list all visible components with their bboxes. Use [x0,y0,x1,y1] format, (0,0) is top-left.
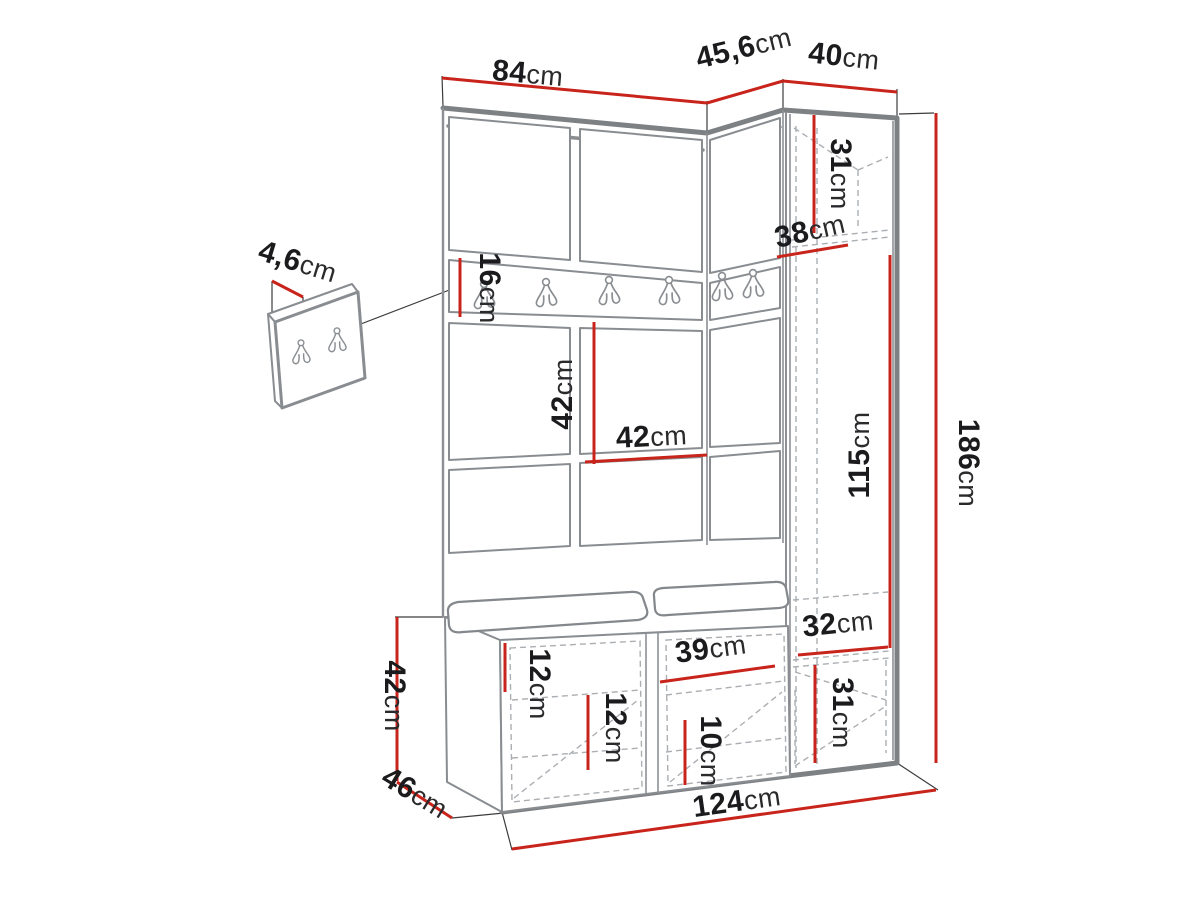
furniture-dimension-diagram: 84cm 45,6cm 40cm 31cm 38cm 186cm 115cm 1… [0,0,1200,899]
dim-line-40 [783,81,897,92]
dim-label-42-bench: 42cm [378,660,411,731]
dim-line-84 [442,78,707,103]
dim-label-42-horizontal: 42cm [615,418,688,455]
dim-label-40: 40cm [807,36,881,76]
dim-label-45-6: 45,6cm [692,20,794,76]
dim-line-4-6 [272,281,303,297]
dim-label-42-vertical: 42cm [546,358,579,429]
dim-label-10: 10cm [694,715,727,786]
bench-cushion-right [654,582,788,616]
dim-label-46: 46cm [376,760,454,825]
dim-label-31-bottom: 31cm [826,677,859,748]
dim-label-4-6: 4,6cm [255,234,341,289]
bench-cushion-left [448,592,647,632]
dim-label-12-a: 12cm [523,648,556,719]
dim-label-115: 115cm [843,412,876,499]
dim-label-186: 186cm [952,419,985,508]
diagram-page: 84cm 45,6cm 40cm 31cm 38cm 186cm 115cm 1… [0,0,1200,899]
dim-label-84: 84cm [491,54,565,93]
dim-label-31-top: 31cm [824,138,857,209]
wall-panel-pointer-line [353,289,452,327]
bench-left-side [445,617,502,812]
dim-line-45-6 [707,81,783,103]
dim-label-12-b: 12cm [599,692,632,763]
dim-label-16: 16cm [473,252,506,323]
wall-hook-panel [268,284,365,408]
